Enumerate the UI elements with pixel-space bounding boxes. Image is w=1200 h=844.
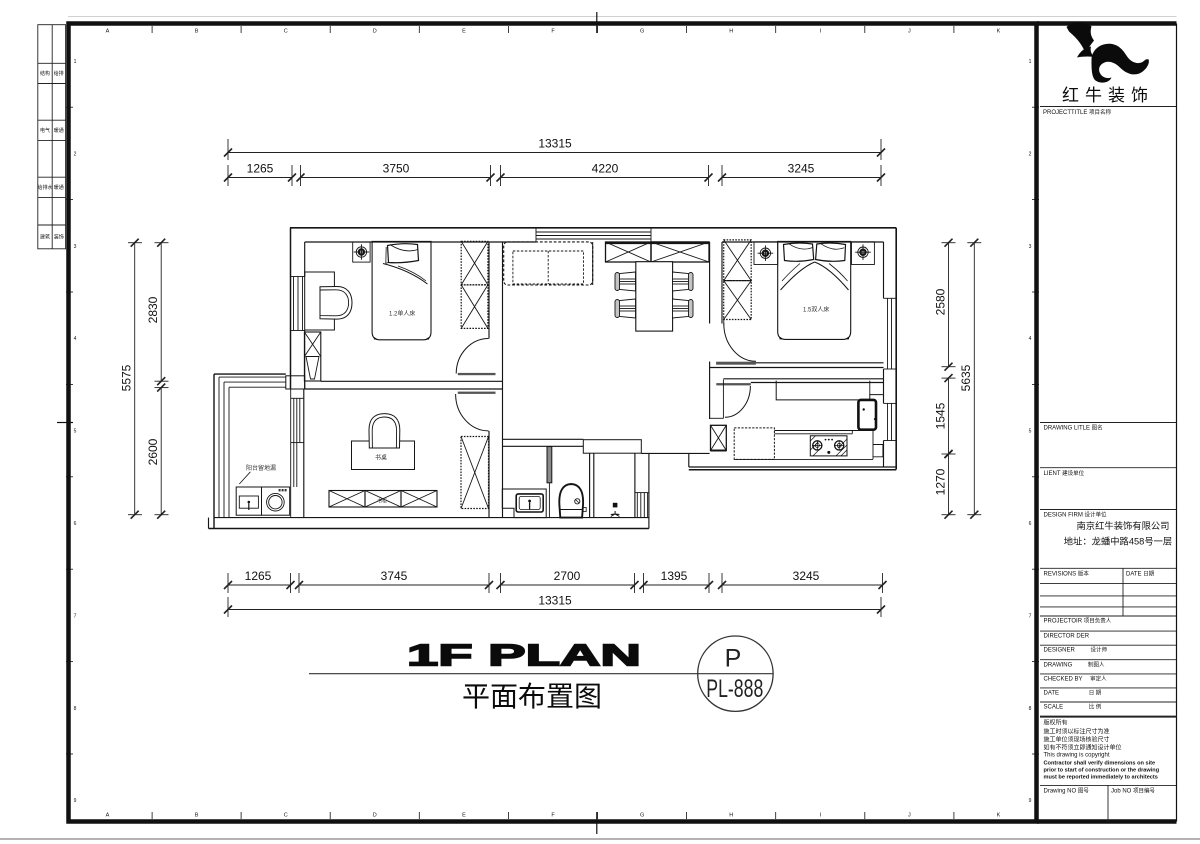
svg-text:给排: 给排	[54, 70, 64, 77]
svg-text:施工单位须现场核验尺寸: 施工单位须现场核验尺寸	[1044, 736, 1110, 744]
svg-text:B: B	[195, 813, 199, 819]
svg-text:J: J	[908, 29, 911, 35]
svg-text:F: F	[551, 813, 555, 819]
svg-text:DIRECTOR DER: DIRECTOR DER	[1044, 634, 1090, 640]
svg-text:1: 1	[74, 59, 77, 65]
svg-text:Contractor shall verify dimens: Contractor shall verify dimensions on si…	[1044, 761, 1156, 767]
svg-text:REVISIONS 版本: REVISIONS 版本	[1044, 569, 1090, 577]
svg-text:南京红牛装饰有限公司: 南京红牛装饰有限公司	[1077, 520, 1170, 531]
svg-text:PROJECTOIR 项目负责人: PROJECTOIR 项目负责人	[1044, 617, 1112, 625]
svg-text:5575: 5575	[120, 364, 134, 391]
svg-text:must be reported immediately t: must be reported immediately to architec…	[1044, 775, 1158, 781]
svg-text:2: 2	[1029, 151, 1032, 157]
svg-text:3745: 3745	[381, 569, 408, 583]
svg-text:9: 9	[74, 798, 77, 804]
svg-text:I: I	[820, 29, 822, 35]
svg-text:暖通: 暖通	[54, 127, 64, 134]
svg-text:3245: 3245	[793, 569, 820, 583]
svg-text:Drawing NO 图号: Drawing NO 图号	[1044, 786, 1090, 794]
svg-text:2580: 2580	[934, 288, 948, 315]
svg-text:PL-888: PL-888	[706, 675, 763, 703]
svg-text:平面布置图: 平面布置图	[462, 681, 602, 712]
svg-text:C: C	[284, 29, 288, 35]
svg-text:DESIGN FIRM 设计单位: DESIGN FIRM 设计单位	[1044, 511, 1108, 519]
svg-text:13315: 13315	[538, 594, 572, 608]
svg-text:暖通: 暖通	[54, 184, 64, 191]
svg-text:Job NO 项目编号: Job NO 项目编号	[1111, 786, 1156, 794]
svg-text:DATE 日期: DATE 日期	[1126, 570, 1155, 577]
svg-text:红牛装饰: 红牛装饰	[1062, 86, 1154, 105]
svg-text:7: 7	[74, 613, 77, 619]
svg-text:6: 6	[74, 521, 77, 527]
svg-text:E: E	[462, 813, 466, 819]
svg-text:G: G	[640, 29, 644, 35]
svg-text:地址：龙蟠中路458号一层: 地址：龙蟠中路458号一层	[1064, 536, 1172, 547]
svg-text:CHECKED BY 审定人: CHECKED BY 审定人	[1044, 674, 1108, 682]
svg-text:8: 8	[1029, 706, 1032, 712]
svg-text:版权所有: 版权所有	[1044, 719, 1068, 727]
svg-text:6: 6	[1029, 521, 1032, 527]
svg-text:1F PLAN: 1F PLAN	[407, 638, 641, 673]
svg-text:阳台留地漏: 阳台留地漏	[246, 464, 276, 472]
svg-text:建筑: 建筑	[40, 234, 50, 241]
svg-text:1265: 1265	[247, 162, 274, 176]
svg-text:SCALE 比 例: SCALE 比 例	[1044, 703, 1102, 711]
svg-text:P: P	[725, 644, 742, 672]
svg-text:PROJECTTITLE 项目名称: PROJECTTITLE 项目名称	[1043, 108, 1112, 116]
svg-text:如有不符须立即通知设计单位: 如有不符须立即通知设计单位	[1044, 744, 1122, 752]
svg-text:I: I	[820, 813, 822, 819]
svg-text:2830: 2830	[146, 296, 160, 323]
svg-text:电气: 电气	[40, 127, 50, 134]
svg-text:1545: 1545	[934, 402, 948, 429]
svg-text:2700: 2700	[554, 569, 581, 583]
svg-text:1.5双人床: 1.5双人床	[803, 306, 829, 314]
svg-text:1.2单人床: 1.2单人床	[389, 310, 415, 318]
svg-text:G: G	[640, 813, 644, 819]
svg-text:C: C	[284, 813, 288, 819]
svg-text:书柜: 书柜	[377, 498, 387, 505]
svg-text:2600: 2600	[146, 438, 160, 465]
svg-text:prior to start of construction: prior to start of construction or the dr…	[1044, 768, 1160, 774]
svg-text:13315: 13315	[538, 137, 572, 151]
svg-text:LIENT 建设单位: LIENT 建设单位	[1044, 469, 1085, 477]
svg-text:4220: 4220	[592, 162, 619, 176]
svg-text:K: K	[997, 29, 1001, 35]
svg-text:装饰: 装饰	[54, 234, 64, 241]
svg-text:结构: 结构	[40, 70, 50, 77]
svg-text:5: 5	[1029, 429, 1032, 435]
svg-text:9: 9	[1029, 798, 1032, 804]
svg-text:3750: 3750	[383, 162, 410, 176]
svg-text:B: B	[195, 29, 199, 35]
svg-text:7: 7	[1029, 613, 1032, 619]
svg-text:A: A	[106, 29, 110, 35]
svg-text:施工时须以标注尺寸为准: 施工时须以标注尺寸为准	[1044, 728, 1110, 736]
svg-text:DESIGNER 设计师: DESIGNER 设计师	[1044, 646, 1108, 654]
svg-text:给排水: 给排水	[37, 184, 52, 191]
svg-text:3245: 3245	[788, 162, 815, 176]
svg-text:3: 3	[74, 244, 77, 250]
svg-text:1395: 1395	[661, 569, 688, 583]
svg-text:5635: 5635	[959, 364, 973, 391]
svg-text:8: 8	[74, 706, 77, 712]
svg-text:F: F	[551, 29, 555, 35]
svg-text:DRAWING LITLE 图名: DRAWING LITLE 图名	[1044, 424, 1103, 432]
svg-text:DATE 日 期: DATE 日 期	[1044, 689, 1102, 696]
svg-text:4: 4	[1029, 336, 1032, 342]
svg-text:K: K	[997, 813, 1001, 819]
svg-text:1265: 1265	[245, 569, 272, 583]
svg-text:H: H	[729, 813, 733, 819]
svg-text:J: J	[908, 813, 911, 819]
svg-text:A: A	[106, 813, 110, 819]
svg-text:E: E	[462, 29, 466, 35]
svg-text:D: D	[373, 29, 377, 35]
svg-text:H: H	[729, 29, 733, 35]
svg-text:书桌: 书桌	[375, 454, 387, 462]
svg-text:This drawing is copyright: This drawing is copyright	[1044, 753, 1110, 759]
svg-text:3: 3	[1029, 244, 1032, 250]
svg-text:1: 1	[1029, 59, 1032, 65]
svg-text:D: D	[373, 813, 377, 819]
svg-text:DRAWING 制图人: DRAWING 制图人	[1044, 660, 1105, 668]
svg-text:5: 5	[74, 429, 77, 435]
svg-text:4: 4	[74, 336, 77, 342]
svg-text:2: 2	[74, 151, 77, 157]
svg-text:1270: 1270	[934, 468, 948, 495]
